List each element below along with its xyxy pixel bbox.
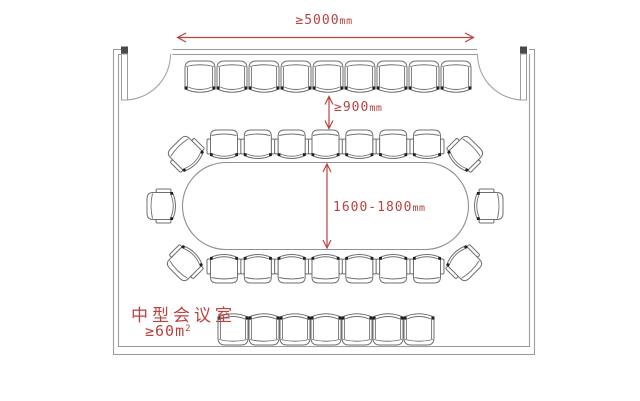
chair-back-row-bottom-3: [280, 314, 311, 345]
dimension-arrow-aisle-clearance: [325, 97, 333, 129]
chair-back-row-bottom-5: [342, 314, 373, 345]
chair-table-bottom-2: [241, 255, 275, 284]
chair-table-bottom-5: [342, 255, 376, 284]
door-right-hinge: [520, 47, 527, 54]
door-right-swing-arc: [478, 54, 524, 100]
chair-wall-row-top-5: [313, 61, 344, 92]
chair-table-top-3: [275, 130, 309, 159]
chair-table-corner-3: [163, 241, 207, 285]
door-left-swing-arc: [125, 54, 171, 100]
chair-table-corner-2: [443, 132, 487, 176]
dimension-label-room-width: ≥5000mm: [254, 13, 394, 28]
door-left-leaf: [122, 54, 128, 100]
chair-back-row-bottom-2: [249, 314, 280, 345]
chair-table-end-right: [475, 189, 504, 223]
dimension-arrow-room-width: [178, 33, 474, 42]
dimension-unit: mm: [412, 203, 425, 214]
chair-table-corner-1: [164, 132, 208, 176]
chair-wall-row-top-2: [217, 61, 248, 92]
door-right-leaf: [521, 54, 527, 100]
chair-table-top-7: [410, 130, 444, 159]
chair-table-bottom-3: [275, 255, 309, 284]
door-opening-left: [128, 45, 173, 57]
chair-wall-row-top-9: [441, 61, 472, 92]
chair-back-row-bottom-7: [404, 314, 435, 345]
room-area-superscript: 2: [185, 324, 191, 334]
chair-table-top-6: [376, 130, 410, 159]
chair-back-row-bottom-6: [373, 314, 404, 345]
chair-table-top-1: [207, 130, 241, 159]
chair-table-top-4: [308, 130, 342, 159]
dimension-value: ≥900: [334, 100, 369, 115]
chair-table-corner-4: [442, 241, 486, 285]
chair-table-top-2: [241, 130, 275, 159]
chair-table-bottom-6: [376, 255, 410, 284]
chair-table-bottom-4: [308, 255, 342, 284]
chair-wall-row-top-8: [409, 61, 440, 92]
dimension-unit: mm: [340, 16, 353, 27]
chair-table-end-left: [147, 189, 176, 223]
conference-table: [183, 163, 469, 250]
room-area-value: ≥60m: [145, 322, 185, 340]
chair-wall-row-top-6: [345, 61, 376, 92]
chair-wall-row-top-4: [281, 61, 312, 92]
dimension-value: ≥5000: [295, 13, 339, 28]
chair-table-bottom-7: [410, 255, 444, 284]
room-area-label: ≥60m2: [145, 322, 192, 340]
dimension-label-aisle-clearance: ≥900mm: [334, 100, 382, 115]
chair-table-bottom-1: [207, 255, 241, 284]
chair-wall-row-top-1: [185, 61, 216, 92]
chair-back-row-bottom-4: [311, 314, 342, 345]
chair-table-top-5: [342, 130, 376, 159]
door-left-hinge: [121, 47, 128, 54]
chair-wall-row-top-7: [377, 61, 408, 92]
floor-plan-drawing: [0, 0, 640, 401]
chair-wall-row-top-3: [249, 61, 280, 92]
dimension-label-table-width: 1600-1800mm: [333, 200, 426, 215]
floor-plan-canvas: ≥5000mm ≥900mm 1600-1800mm 中型会议室 ≥60m2: [0, 0, 640, 401]
dimension-unit: mm: [369, 103, 382, 114]
dimension-value: 1600-1800: [333, 200, 412, 215]
